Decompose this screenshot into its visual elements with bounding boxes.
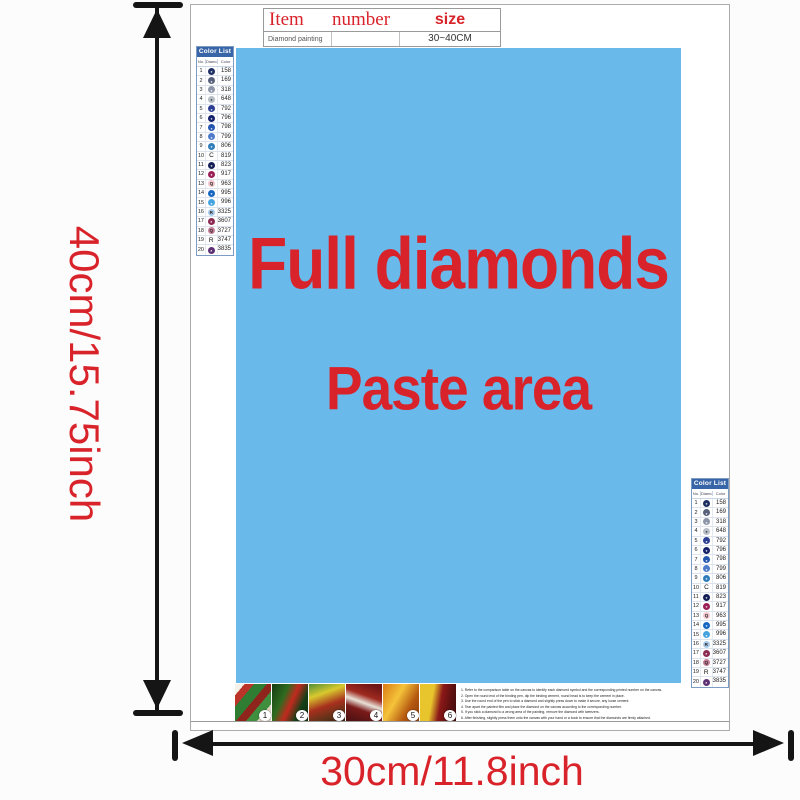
- diamond-cell: Q: [700, 659, 712, 667]
- diamond-symbol-dot: [703, 528, 710, 535]
- color-list-row: 4 648: [692, 527, 728, 536]
- dmc-color-code: 3607: [712, 649, 728, 657]
- diamond-cell: [700, 518, 712, 526]
- color-list-row: 1 158: [197, 67, 233, 76]
- color-list-row: 7 798: [692, 555, 728, 564]
- row-number: 14: [197, 190, 205, 196]
- row-number: 4: [692, 528, 700, 534]
- color-list-row: 1 158: [692, 499, 728, 508]
- row-number: 10: [197, 153, 205, 159]
- dmc-color-code: 318: [217, 86, 233, 94]
- color-list-row: 6 796: [197, 114, 233, 123]
- diamond-cell: Q: [205, 227, 217, 235]
- diamond-symbol-dot: R: [209, 236, 214, 245]
- dmc-color-code: 796: [712, 546, 728, 554]
- dmc-color-code: 792: [712, 537, 728, 545]
- dmc-color-code: 799: [217, 133, 233, 141]
- color-list-column-headers: No. Diamond Color: [692, 489, 728, 499]
- row-number: 1: [692, 500, 700, 506]
- dmc-color-code: 806: [712, 574, 728, 582]
- diamond-symbol-dot: [208, 86, 215, 93]
- row-number: 6: [692, 547, 700, 553]
- dmc-color-code: 823: [217, 161, 233, 169]
- row-number: 4: [197, 96, 205, 102]
- diamond-symbol-dot: [703, 556, 710, 563]
- step-photo-6: 6: [420, 684, 456, 722]
- diamond-cell: [205, 198, 217, 206]
- dmc-color-code: 169: [217, 76, 233, 84]
- width-dimension-label: 30cm/11.8inch: [320, 748, 584, 795]
- dmc-color-code: 819: [712, 584, 728, 592]
- dmc-color-code: 963: [712, 612, 728, 620]
- diamond-cell: [700, 593, 712, 601]
- row-number: 20: [197, 247, 205, 253]
- color-list-rows: 1 158 2 169 3 318 4 648 5 792 6: [197, 67, 233, 255]
- diamond-symbol-dot: [703, 594, 710, 601]
- dmc-color-code: 3325: [217, 208, 233, 216]
- step-photo-1: 1: [235, 684, 271, 722]
- diamond-symbol-dot: C: [704, 583, 709, 592]
- color-list-row: 5 792: [692, 537, 728, 546]
- diamond-column-header: Diamond: [205, 59, 217, 64]
- dmc-color-code: 648: [217, 95, 233, 103]
- diamond-cell: [205, 123, 217, 131]
- color-list-row: 18 Q 3727: [197, 227, 233, 236]
- dmc-color-code: 995: [217, 189, 233, 197]
- paste-area: Full diamonds Paste area: [236, 48, 681, 683]
- color-list-row: 13 Q 963: [197, 180, 233, 189]
- dmc-color-code: 169: [712, 508, 728, 516]
- instruction-line: 1. Refer to the comparison table on the …: [461, 688, 699, 693]
- step-photo-2: 2: [272, 684, 308, 722]
- dmc-color-code: 917: [712, 602, 728, 610]
- instruction-line: 5. If you stick a diamond to a wrong are…: [461, 710, 699, 715]
- diamond-cell: [205, 105, 217, 113]
- color-list-row: 15 996: [692, 630, 728, 639]
- diamond-cell: R: [700, 640, 712, 648]
- color-list-row: 6 796: [692, 546, 728, 555]
- dmc-color-code: 318: [712, 518, 728, 526]
- dmc-color-code: 792: [217, 105, 233, 113]
- color-list-row: 3 318: [197, 86, 233, 95]
- dmc-color-code: 3747: [712, 668, 728, 676]
- color-list-row: 17 3607: [197, 217, 233, 226]
- step-thumbnails: 1 2 3 4 5 6: [235, 684, 456, 722]
- diamond-cell: [700, 621, 712, 629]
- step-number-badge: 4: [370, 710, 382, 721]
- arrow-end-cap: [133, 710, 183, 716]
- diamond-symbol-dot: R: [704, 668, 709, 677]
- color-list-rows: 1 158 2 169 3 318 4 648 5 792 6: [692, 499, 728, 687]
- color-list-row: 17 3607: [692, 649, 728, 658]
- diamond-symbol-dot: [208, 96, 215, 103]
- color-list-row: 12 917: [692, 602, 728, 611]
- step-photo-5: 5: [383, 684, 419, 722]
- color-list-row: 10 C 819: [197, 152, 233, 161]
- diamond-symbol-dot: [208, 115, 215, 122]
- dmc-color-code: 648: [712, 527, 728, 535]
- row-number: 3: [197, 87, 205, 93]
- instruction-line: 6. After finishing, slightly press them …: [461, 716, 699, 721]
- diamond-cell: [205, 76, 217, 84]
- color-list-title: Color List: [692, 479, 728, 489]
- arrow-shaft: [155, 8, 159, 710]
- row-number: 7: [692, 557, 700, 563]
- color-list-row: 14 995: [692, 621, 728, 630]
- diamond-symbol-dot: [208, 77, 215, 84]
- row-number: 3: [692, 519, 700, 525]
- diamond-cell: [700, 537, 712, 545]
- row-number: 12: [692, 603, 700, 609]
- arrow-end-cap: [172, 730, 178, 761]
- diamond-symbol-dot: [208, 247, 215, 254]
- diamond-symbol-dot: Q: [208, 227, 215, 234]
- diamond-cell: [700, 565, 712, 573]
- dmc-color-code: 158: [712, 499, 728, 507]
- color-list-row: 8 799: [692, 565, 728, 574]
- color-list-row: 16 R 3325: [692, 640, 728, 649]
- diamond-symbol-dot: [703, 500, 710, 507]
- diamond-symbol-dot: C: [209, 151, 214, 160]
- diamond-cell: R: [205, 236, 217, 244]
- color-list-row: 13 Q 963: [692, 612, 728, 621]
- paste-area-subtitle: Paste area: [236, 352, 681, 424]
- color-list-row: 18 Q 3727: [692, 659, 728, 668]
- instruction-line: 3. Use the round end of the pen to stick…: [461, 699, 699, 704]
- step-number-badge: 3: [333, 710, 345, 721]
- dmc-color-code: 798: [217, 123, 233, 131]
- color-list-row: 11 823: [197, 161, 233, 170]
- item-table-data-row: Diamond painting 30~40CM: [264, 32, 500, 46]
- diamond-cell: [700, 602, 712, 610]
- diamond-cell: Q: [205, 180, 217, 188]
- diamond-symbol-dot: [208, 143, 215, 150]
- diamond-cell: C: [700, 584, 712, 592]
- color-list-row: 10 C 819: [692, 584, 728, 593]
- diamond-cell: [205, 142, 217, 150]
- dmc-color-code: 3727: [217, 227, 233, 235]
- diamond-symbol-dot: [703, 622, 710, 629]
- arrow-head-down-icon: [143, 680, 171, 709]
- dmc-color-code: 158: [217, 67, 233, 75]
- row-number: 19: [197, 237, 205, 243]
- color-list-row: 19 R 3747: [692, 668, 728, 677]
- diamond-symbol-dot: [703, 631, 710, 638]
- canvas-sheet: Item number size Diamond painting 30~40C…: [190, 4, 730, 731]
- row-number: 19: [692, 669, 700, 675]
- diamond-cell: C: [205, 152, 217, 160]
- color-list-row: 9 806: [692, 574, 728, 583]
- row-number: 7: [197, 125, 205, 131]
- color-list-right: Color List No. Diamond Color 1 158 2 169…: [691, 478, 729, 688]
- step-photo-3: 3: [309, 684, 345, 722]
- row-number: 10: [692, 585, 700, 591]
- diamond-symbol-dot: [208, 105, 215, 112]
- color-list-row: 3 318: [692, 518, 728, 527]
- color-list-row: 20 3835: [197, 245, 233, 254]
- dmc-color-code: 819: [217, 152, 233, 160]
- row-number: 16: [197, 209, 205, 215]
- diamond-cell: [205, 217, 217, 225]
- diamond-cell: [700, 649, 712, 657]
- diamond-cell: [205, 133, 217, 141]
- row-number: 8: [692, 566, 700, 572]
- item-size-cell: 30~40CM: [399, 32, 500, 46]
- diamond-cell: [700, 574, 712, 582]
- diamond-cell: [205, 161, 217, 169]
- color-column-header: Color: [217, 59, 233, 64]
- diamond-symbol-dot: [703, 518, 710, 525]
- row-number: 15: [197, 200, 205, 206]
- step-photo-4: 4: [346, 684, 382, 722]
- diamond-symbol-dot: [208, 162, 215, 169]
- dmc-color-code: 3835: [712, 677, 728, 686]
- color-list-row: 11 823: [692, 593, 728, 602]
- item-column-header: Item: [264, 9, 332, 31]
- product-image: 40cm/15.75inch Item number size Diamond …: [0, 0, 800, 800]
- row-number: 20: [692, 679, 700, 685]
- step-number-badge: 2: [296, 710, 308, 721]
- diamond-cell: R: [700, 668, 712, 676]
- arrow-head-right-icon: [753, 730, 784, 756]
- diamond-symbol-dot: [208, 68, 215, 75]
- item-info-table: Item number size Diamond painting 30~40C…: [263, 8, 501, 47]
- row-number: 18: [692, 660, 700, 666]
- diamond-cell: [700, 555, 712, 563]
- height-dimension-label: 40cm/15.75inch: [60, 226, 108, 523]
- diamond-symbol-dot: [703, 679, 710, 686]
- diamond-column-header: Diamond: [700, 491, 712, 496]
- dmc-color-code: 3747: [217, 236, 233, 244]
- color-list-column-headers: No. Diamond Color: [197, 57, 233, 67]
- step-number-badge: 1: [259, 710, 271, 721]
- color-list-row: 8 799: [197, 133, 233, 142]
- item-number-cell: [331, 32, 399, 46]
- item-name-cell: Diamond painting: [264, 36, 331, 43]
- row-number: 14: [692, 622, 700, 628]
- row-number: 15: [692, 632, 700, 638]
- row-number: 13: [692, 613, 700, 619]
- diamond-cell: [700, 527, 712, 535]
- row-number: 5: [692, 538, 700, 544]
- color-list-row: 20 3835: [692, 677, 728, 686]
- color-list-row: 2 169: [692, 508, 728, 517]
- size-column-header: size: [400, 11, 500, 29]
- color-list-title: Color List: [197, 47, 233, 57]
- number-column-header: number: [332, 9, 400, 31]
- diamond-cell: Q: [700, 612, 712, 620]
- diamond-cell: [205, 114, 217, 122]
- color-list-row: 2 169: [197, 76, 233, 85]
- row-number: 11: [692, 594, 700, 600]
- color-list-row: 4 648: [197, 95, 233, 104]
- color-list-row: 7 798: [197, 123, 233, 132]
- color-list-row: 19 R 3747: [197, 236, 233, 245]
- diamond-symbol-dot: [703, 603, 710, 610]
- diamond-symbol-dot: [703, 547, 710, 554]
- color-list-row: 16 R 3325: [197, 208, 233, 217]
- diamond-cell: [700, 546, 712, 554]
- diamond-symbol-dot: [208, 218, 215, 225]
- row-number: 18: [197, 228, 205, 234]
- arrow-shaft: [210, 742, 758, 746]
- diamond-symbol-dot: Q: [703, 612, 710, 619]
- row-number: 2: [197, 78, 205, 84]
- row-number: 17: [197, 218, 205, 224]
- paste-area-title: Full diamonds: [236, 220, 681, 305]
- no-column-header: No.: [692, 491, 700, 496]
- color-list-row: 12 917: [197, 170, 233, 179]
- diamond-cell: [205, 67, 217, 75]
- diamond-symbol-dot: [703, 575, 710, 582]
- dmc-color-code: 996: [712, 630, 728, 638]
- no-column-header: No.: [197, 59, 205, 64]
- diamond-symbol-dot: [703, 650, 710, 657]
- arrow-end-cap: [788, 730, 794, 761]
- diamond-cell: [205, 245, 217, 254]
- row-number: 9: [197, 143, 205, 149]
- color-list-row: 9 806: [197, 142, 233, 151]
- canvas-bottom-edge-line: [191, 721, 729, 722]
- color-list-row: 14 995: [197, 189, 233, 198]
- diamond-symbol-dot: [208, 124, 215, 131]
- row-number: 13: [197, 181, 205, 187]
- dmc-color-code: 799: [712, 565, 728, 573]
- dmc-color-code: 996: [217, 198, 233, 206]
- color-list-row: 15 996: [197, 198, 233, 207]
- dmc-color-code: 963: [217, 180, 233, 188]
- diamond-cell: [205, 189, 217, 197]
- diamond-symbol-dot: [208, 133, 215, 140]
- diamond-symbol-dot: [208, 190, 215, 197]
- diamond-cell: [700, 677, 712, 686]
- diamond-symbol-dot: Q: [208, 180, 215, 187]
- row-number: 11: [197, 162, 205, 168]
- dmc-color-code: 995: [712, 621, 728, 629]
- diamond-cell: [700, 499, 712, 507]
- dmc-color-code: 3727: [712, 659, 728, 667]
- dmc-color-code: 798: [712, 555, 728, 563]
- dmc-color-code: 806: [217, 142, 233, 150]
- row-number: 5: [197, 106, 205, 112]
- row-number: 2: [692, 510, 700, 516]
- diamond-symbol-dot: [208, 199, 215, 206]
- diamond-cell: [700, 630, 712, 638]
- item-table-header-row: Item number size: [264, 9, 500, 32]
- diamond-cell: R: [205, 208, 217, 216]
- color-column-header: Color: [712, 491, 728, 496]
- dmc-color-code: 917: [217, 170, 233, 178]
- step-number-badge: 6: [444, 710, 456, 721]
- instruction-line: 2. Open the round end of the binding pen…: [461, 694, 699, 699]
- instructions: 1. Refer to the comparison table on the …: [461, 688, 699, 721]
- row-number: 1: [197, 68, 205, 74]
- dmc-color-code: 823: [712, 593, 728, 601]
- row-number: 6: [197, 115, 205, 121]
- row-number: 8: [197, 134, 205, 140]
- color-list-left: Color List No. Diamond Color 1 158 2 169…: [196, 46, 234, 256]
- dmc-color-code: 3835: [217, 245, 233, 254]
- row-number: 16: [692, 641, 700, 647]
- dmc-color-code: 3325: [712, 640, 728, 648]
- diamond-cell: [700, 508, 712, 516]
- step-number-badge: 5: [407, 710, 419, 721]
- diamond-cell: [205, 86, 217, 94]
- diamond-symbol-dot: Q: [703, 659, 710, 666]
- diamond-symbol-dot: [703, 537, 710, 544]
- diamond-symbol-dot: [703, 509, 710, 516]
- diamond-cell: [205, 95, 217, 103]
- instruction-line: 4. Tear apart the painted film and place…: [461, 705, 699, 710]
- row-number: 12: [197, 171, 205, 177]
- dmc-color-code: 796: [217, 114, 233, 122]
- row-number: 9: [692, 575, 700, 581]
- row-number: 17: [692, 650, 700, 656]
- diamond-symbol-dot: [208, 171, 215, 178]
- diamond-cell: [205, 170, 217, 178]
- diamond-symbol-dot: R: [703, 641, 710, 648]
- diamond-symbol-dot: [703, 565, 710, 572]
- dmc-color-code: 3607: [217, 217, 233, 225]
- diamond-symbol-dot: R: [208, 209, 215, 216]
- color-list-row: 5 792: [197, 105, 233, 114]
- arrow-head-left-icon: [182, 730, 213, 756]
